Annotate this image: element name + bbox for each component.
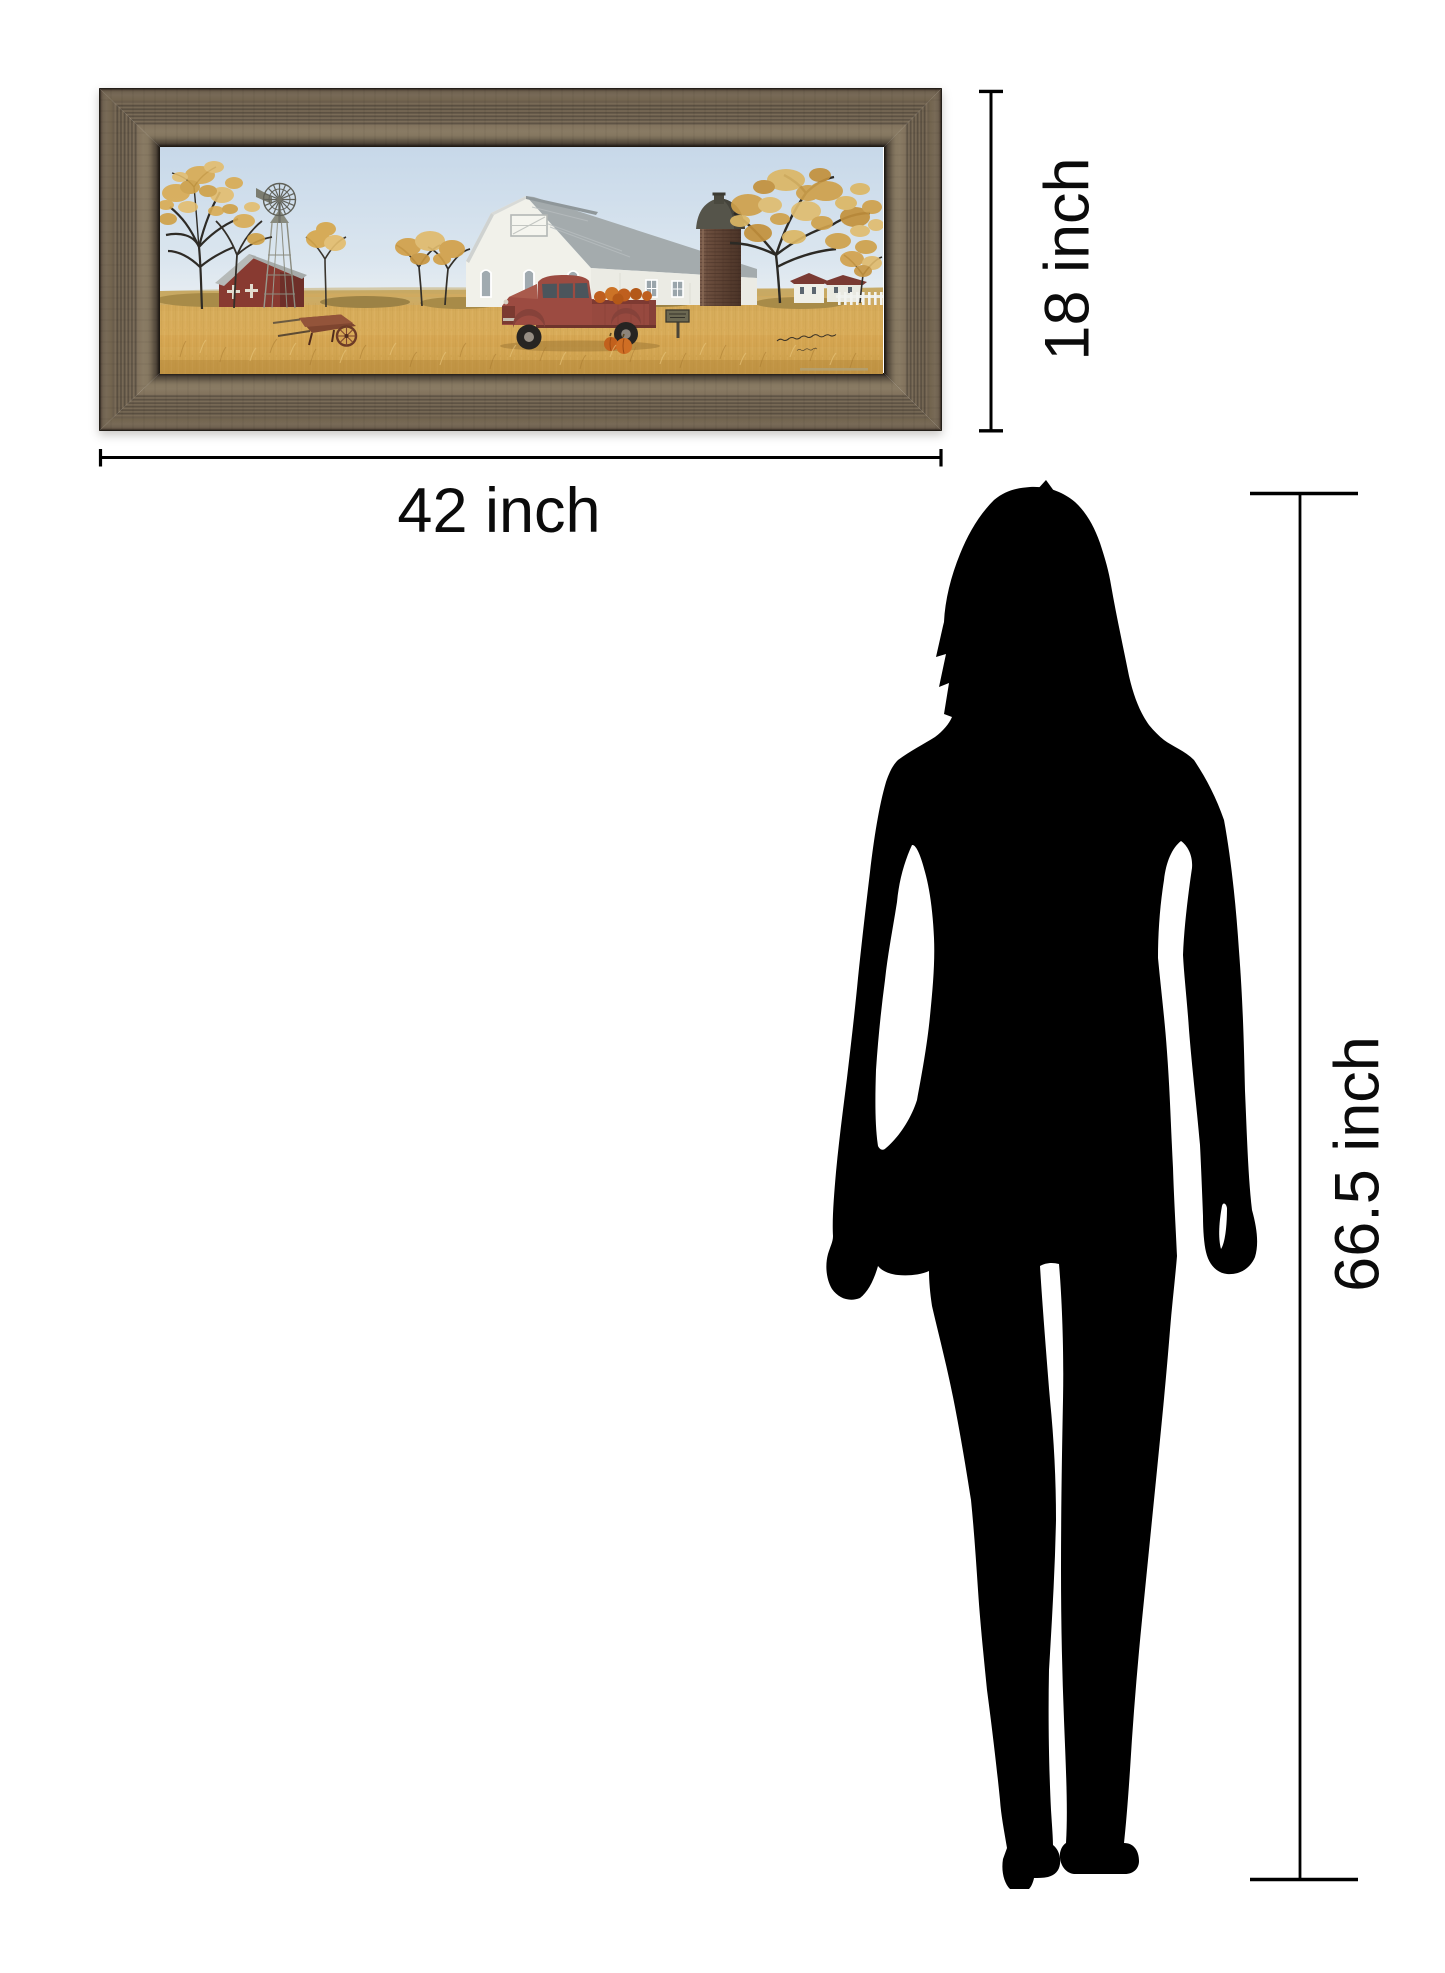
svg-text:18 inch: 18 inch [1033,157,1103,360]
svg-text:66.5 inch: 66.5 inch [1323,1036,1393,1292]
svg-text:42 inch: 42 inch [397,476,600,546]
